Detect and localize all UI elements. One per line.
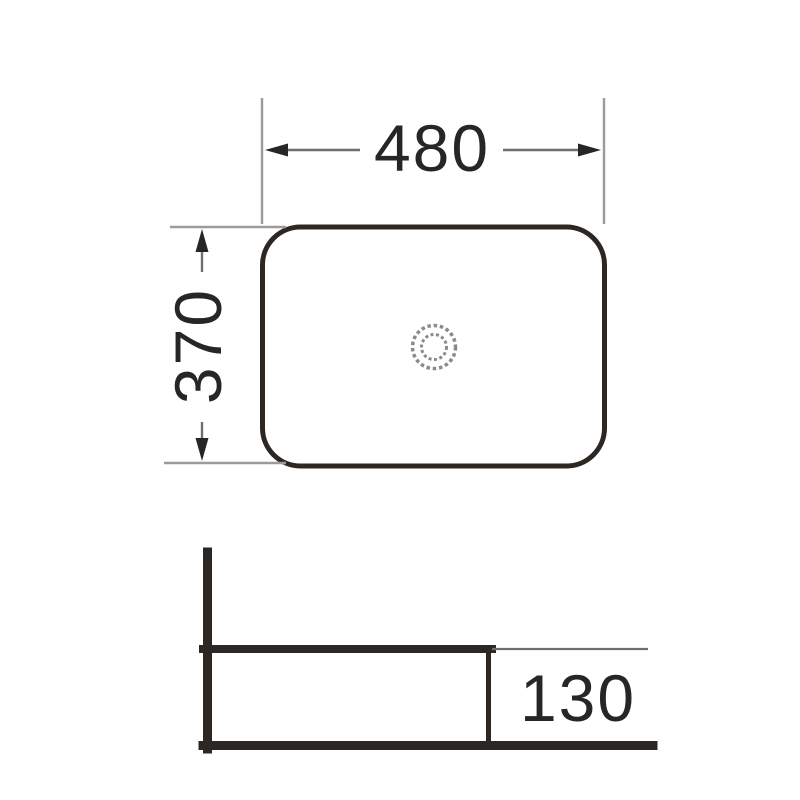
basin-technical-drawing: 480 370	[0, 0, 800, 800]
arrowhead-down-icon	[196, 438, 209, 461]
drawing-canvas: 480 370	[0, 0, 800, 800]
top-view	[263, 227, 605, 466]
basin-outline	[263, 227, 605, 466]
width-dimension: 480	[262, 98, 604, 224]
width-dimension-label: 480	[374, 111, 490, 185]
side-view: 130	[203, 552, 653, 749]
arrowhead-up-icon	[196, 229, 209, 252]
drain-hole	[413, 326, 456, 369]
arrowhead-left-icon	[265, 144, 288, 157]
height-dimension-label: 130	[520, 661, 636, 735]
depth-dimension: 370	[161, 227, 286, 463]
depth-dimension-label: 370	[161, 288, 235, 404]
drain-inner-circle	[422, 335, 447, 360]
arrowhead-right-icon	[578, 144, 601, 157]
drain-outer-circle	[413, 326, 456, 369]
